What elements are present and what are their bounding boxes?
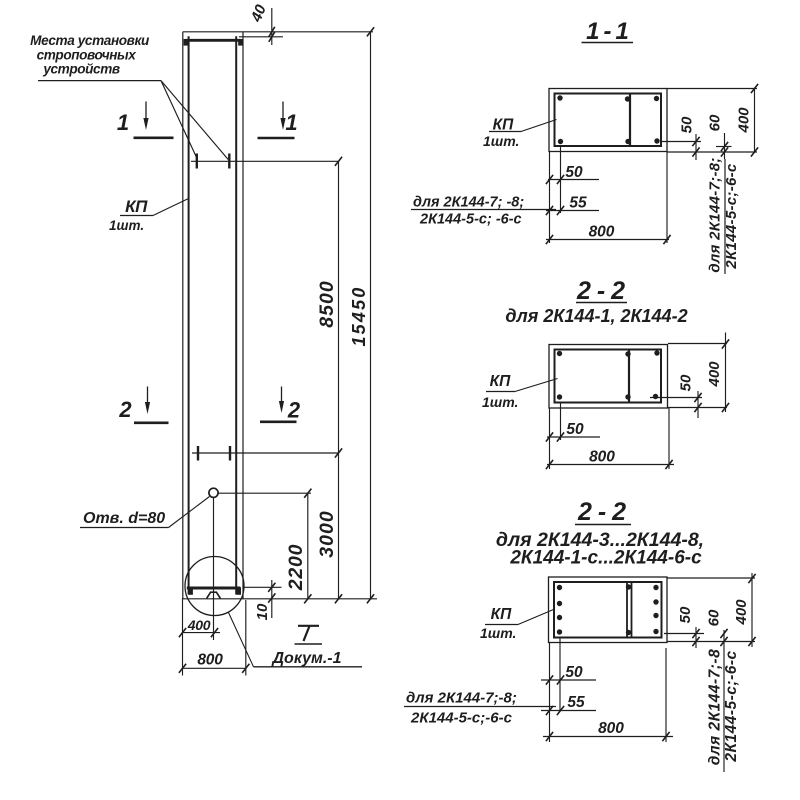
- svg-text:1шт.: 1шт.: [480, 625, 516, 641]
- svg-text:400: 400: [736, 107, 753, 134]
- svg-text:КП: КП: [491, 606, 513, 623]
- svg-text:50: 50: [679, 116, 696, 133]
- svg-text:2: 2: [118, 397, 132, 422]
- svg-text:55: 55: [567, 694, 585, 711]
- svg-text:60: 60: [707, 114, 724, 131]
- svg-text:для 2К144-7;-8;: для 2К144-7;-8;: [406, 690, 517, 707]
- svg-text:50: 50: [565, 664, 583, 681]
- svg-text:2-2: 2-2: [576, 277, 631, 305]
- svg-text:10: 10: [254, 603, 271, 620]
- svg-text:1: 1: [285, 110, 297, 135]
- svg-text:для 2К144-7;-8: для 2К144-7;-8: [707, 649, 724, 765]
- svg-text:55: 55: [569, 195, 587, 212]
- svg-text:50: 50: [677, 606, 694, 623]
- svg-text:1: 1: [117, 110, 129, 135]
- svg-text:Места установки: Места установки: [30, 33, 150, 48]
- svg-text:50: 50: [566, 421, 584, 438]
- svg-text:КП: КП: [490, 373, 512, 390]
- svg-text:КП: КП: [125, 197, 148, 216]
- svg-text:для 2К144-1, 2К144-2: для 2К144-1, 2К144-2: [505, 306, 687, 326]
- svg-text:400: 400: [733, 599, 750, 626]
- svg-text:строповочных: строповочных: [37, 48, 138, 63]
- svg-text:для 2К144-7;-8;: для 2К144-7;-8;: [707, 157, 724, 272]
- svg-text:800: 800: [598, 720, 624, 737]
- svg-text:2-2: 2-2: [577, 498, 632, 526]
- svg-text:2: 2: [287, 398, 301, 423]
- svg-text:2К144-5-с;-6-с: 2К144-5-с;-6-с: [410, 710, 513, 727]
- svg-text:для 2К144-7; -8;: для 2К144-7; -8;: [413, 195, 524, 211]
- svg-text:Докум.-1: Докум.-1: [270, 650, 341, 667]
- svg-text:15450: 15450: [349, 285, 369, 346]
- svg-text:60: 60: [706, 609, 723, 626]
- svg-text:800: 800: [589, 224, 615, 241]
- svg-text:8500: 8500: [316, 280, 338, 327]
- svg-text:устройств: устройств: [42, 62, 120, 77]
- svg-text:2К144-1-с...2К144-6-с: 2К144-1-с...2К144-6-с: [509, 548, 702, 569]
- svg-text:1-1: 1-1: [586, 18, 633, 45]
- svg-text:800: 800: [589, 449, 615, 466]
- svg-text:1шт.: 1шт.: [482, 394, 518, 410]
- svg-text:400: 400: [187, 617, 211, 633]
- svg-text:2К144-5-с; -6-с: 2К144-5-с; -6-с: [419, 212, 522, 228]
- svg-text:1шт.: 1шт.: [109, 218, 144, 233]
- svg-text:400: 400: [706, 361, 723, 388]
- svg-text:800: 800: [197, 652, 223, 669]
- svg-text:50: 50: [565, 164, 583, 181]
- svg-text:2К144-5-с;-6-с: 2К144-5-с;-6-с: [723, 650, 740, 762]
- svg-text:2200: 2200: [285, 544, 307, 592]
- svg-text:Отв. d=80: Отв. d=80: [83, 510, 165, 527]
- svg-text:3000: 3000: [316, 510, 338, 557]
- svg-text:50: 50: [678, 374, 695, 391]
- svg-text:1шт.: 1шт.: [483, 133, 519, 149]
